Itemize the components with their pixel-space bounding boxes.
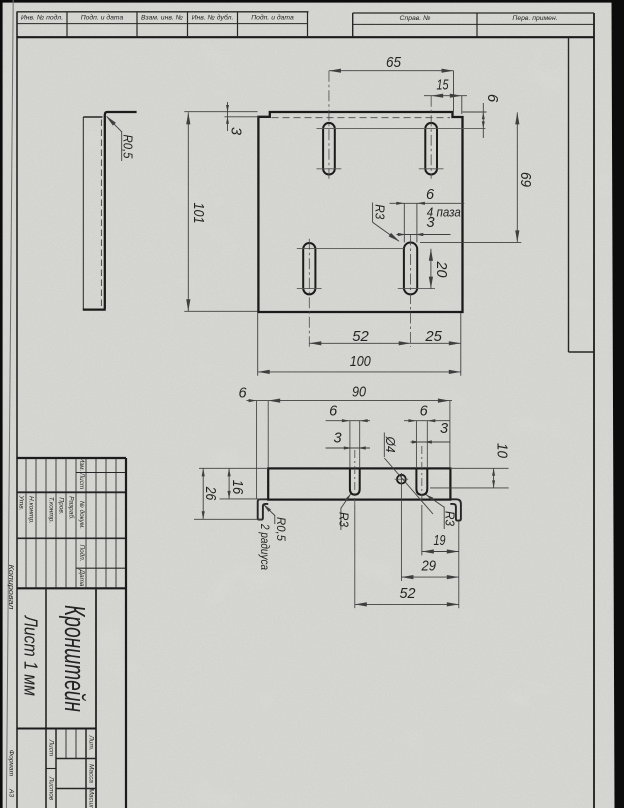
svg-text:Ø4: Ø4: [383, 436, 398, 453]
svg-text:20: 20: [433, 261, 450, 279]
svg-text:6: 6: [238, 386, 247, 402]
svg-text:№ докум.: № докум.: [78, 501, 86, 529]
svg-text:Взам. инв. №: Взам. инв. №: [141, 14, 183, 21]
svg-text:R3: R3: [442, 511, 457, 527]
svg-text:3: 3: [440, 421, 448, 437]
svg-text:R3: R3: [336, 512, 351, 528]
svg-text:Разраб.: Разраб.: [68, 496, 76, 520]
svg-text:Лист 1 мм: Лист 1 мм: [21, 615, 42, 696]
svg-text:3: 3: [333, 430, 341, 446]
svg-text:Н.контр.: Н.контр.: [28, 496, 35, 524]
svg-text:16: 16: [229, 480, 245, 495]
svg-text:90: 90: [352, 384, 367, 401]
svg-text:100: 100: [350, 353, 372, 370]
svg-text:Справ. №: Справ. №: [400, 15, 431, 22]
svg-text:R0,5: R0,5: [121, 135, 135, 159]
svg-text:Подп.: Подп.: [78, 544, 86, 561]
svg-text:101: 101: [190, 203, 207, 224]
svg-text:Подп. и дата: Подп. и дата: [251, 13, 294, 21]
svg-text:Подп. и дата: Подп. и дата: [81, 13, 124, 21]
svg-text:А3: А3: [8, 788, 15, 797]
svg-text:R0,5: R0,5: [274, 517, 288, 541]
svg-text:6: 6: [420, 404, 429, 420]
svg-text:69: 69: [517, 172, 534, 188]
svg-text:2 радиуса: 2 радиуса: [258, 523, 270, 570]
svg-text:Инв. № подл.: Инв. № подл.: [21, 13, 63, 21]
svg-text:Лист: Лист: [48, 739, 55, 757]
svg-text:Перв. примен.: Перв. примен.: [512, 15, 557, 22]
svg-text:Изм.: Изм.: [78, 458, 85, 472]
svg-text:Масса: Масса: [88, 764, 95, 783]
svg-text:Лист: Лист: [78, 472, 85, 490]
svg-text:6: 6: [329, 404, 338, 420]
svg-text:3: 3: [228, 127, 244, 135]
svg-text:19: 19: [434, 533, 446, 549]
svg-text:3: 3: [426, 215, 434, 231]
svg-text:Пров.: Пров.: [58, 497, 65, 515]
svg-text:29: 29: [421, 558, 436, 574]
svg-text:52: 52: [352, 328, 369, 345]
svg-text:Кронштейн: Кронштейн: [58, 605, 90, 712]
svg-text:Утв.: Утв.: [18, 495, 25, 511]
svg-text:Инв. № дубл.: Инв. № дубл.: [192, 13, 234, 21]
svg-text:Формат: Формат: [8, 750, 15, 777]
svg-text:25: 25: [424, 328, 442, 345]
svg-text:10: 10: [494, 443, 510, 458]
svg-text:6: 6: [426, 187, 435, 203]
svg-text:R3: R3: [372, 204, 387, 220]
svg-text:Масштаб: Масштаб: [88, 789, 96, 808]
svg-text:Лит.: Лит.: [88, 735, 95, 751]
svg-text:26: 26: [202, 486, 218, 501]
svg-text:Копировал: Копировал: [7, 565, 16, 610]
svg-text:6: 6: [484, 94, 501, 103]
svg-text:Дата: Дата: [78, 569, 85, 587]
svg-text:15: 15: [437, 77, 449, 94]
svg-text:Листов: Листов: [48, 776, 55, 801]
svg-text:52: 52: [400, 586, 416, 602]
svg-text:65: 65: [386, 54, 402, 71]
svg-text:Т.контр.: Т.контр.: [48, 497, 55, 524]
